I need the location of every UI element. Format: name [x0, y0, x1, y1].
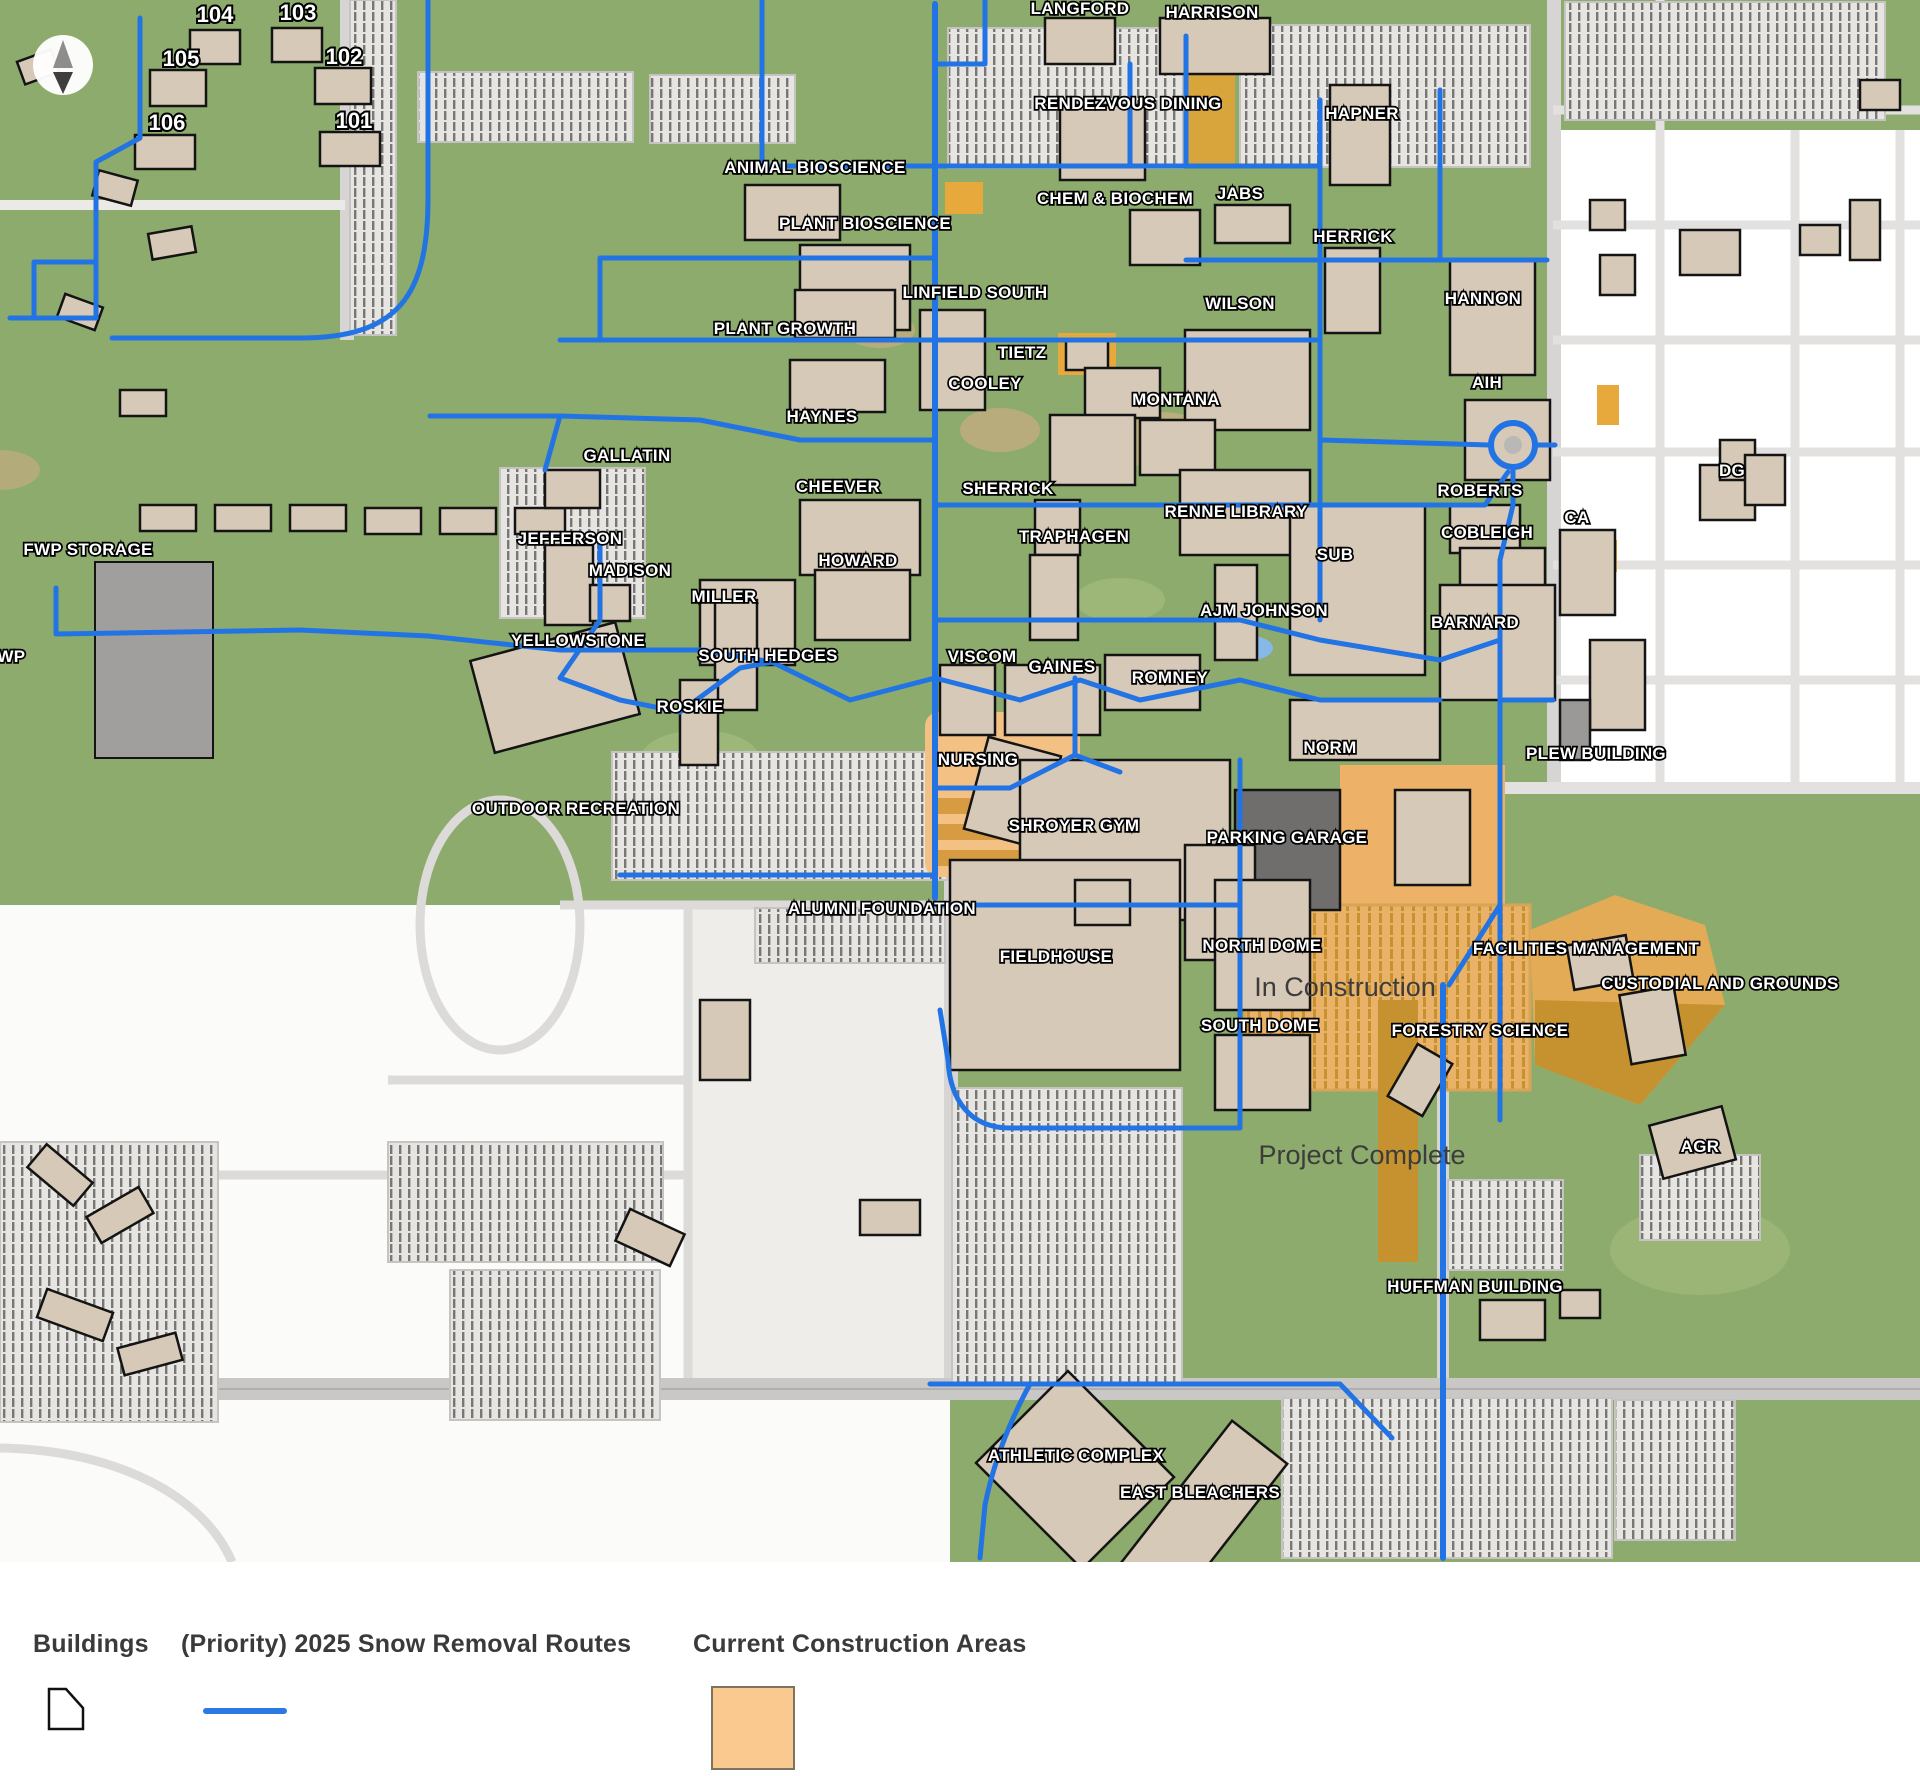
building-label: TRAPHAGEN — [1019, 527, 1129, 546]
building-footprint — [1030, 555, 1078, 640]
building-footprint — [790, 360, 885, 412]
building-label: ATHLETIC COMPLEX — [988, 1446, 1165, 1465]
building-label: COBLEIGH — [1441, 523, 1533, 542]
building-footprint — [290, 505, 346, 531]
building-label: 104 — [197, 2, 234, 27]
map-legend: Buildings (Priority) 2025 Snow Removal R… — [0, 1562, 1920, 1776]
building-footprint — [1395, 790, 1470, 885]
building-label: HOWARD — [818, 551, 897, 570]
building-footprint — [140, 505, 196, 531]
building-footprint — [680, 680, 718, 765]
building-footprint — [1600, 255, 1635, 295]
legend-label-snow-routes: (Priority) 2025 Snow Removal Routes — [181, 1630, 631, 1659]
building-footprint — [320, 132, 380, 166]
building-footprint — [1480, 1300, 1545, 1340]
building-label: FWP STORAGE — [23, 540, 152, 559]
building-label: MILLER — [691, 587, 756, 606]
building-label: NORM — [1303, 738, 1356, 757]
building-footprint — [1560, 1290, 1600, 1318]
building-footprint — [365, 508, 421, 534]
building-label: AJM JOHNSON — [1200, 601, 1328, 620]
building-label: FIELDHOUSE — [1000, 947, 1113, 966]
building-footprint — [1800, 225, 1840, 255]
building-label: SUB — [1317, 545, 1354, 564]
building-label: WILSON — [1205, 294, 1275, 313]
building-label: GALLATIN — [583, 446, 670, 465]
building-label: PLEW BUILDING — [1526, 744, 1666, 763]
building-label: CHEEVER — [796, 477, 880, 496]
building-label: OUTDOOR RECREATION — [472, 799, 680, 818]
legend-label-buildings: Buildings — [33, 1630, 149, 1659]
building-footprint — [215, 505, 271, 531]
compass-icon[interactable] — [33, 35, 93, 95]
building-footprint — [1590, 640, 1645, 730]
building-footprint — [1680, 230, 1740, 275]
parking-lot — [650, 75, 795, 143]
building-footprint — [545, 545, 593, 625]
building-footprint — [1050, 415, 1135, 485]
building-label: SOUTH DOME — [1201, 1016, 1319, 1035]
campus-map[interactable]: 104103105102106101LANGFORDHARRISONRENDEZ… — [0, 0, 1920, 1562]
parking-lot — [418, 72, 633, 142]
building-label: BARNARD — [1431, 613, 1519, 632]
building-footprint — [1860, 80, 1900, 110]
building-label: AIH — [1472, 373, 1502, 392]
building-label: HANNON — [1445, 289, 1521, 308]
building-label: RENDEZVOUS DINING — [1034, 94, 1221, 113]
building-label: CUSTODIAL AND GROUNDS — [1601, 974, 1838, 993]
roundabout — [1504, 436, 1522, 454]
building-label: SHROYER GYM — [1009, 816, 1140, 835]
building-footprint — [590, 585, 630, 621]
building-label: ANIMAL BIOSCIENCE — [724, 158, 905, 177]
building-label: PLANT GROWTH — [714, 319, 856, 338]
building-label: LANGFORD — [1031, 0, 1130, 18]
building-footprint — [940, 665, 995, 735]
building-label: HUFFMAN BUILDING — [1387, 1277, 1563, 1296]
building-label: MADISON — [589, 561, 671, 580]
parking-lot — [450, 1270, 660, 1420]
building-label: SOUTH HEDGES — [698, 646, 838, 665]
building-label: COOLEY — [948, 374, 1022, 393]
building-footprint — [1066, 340, 1108, 370]
building-label: PARKING GARAGE — [1207, 828, 1368, 847]
building-label: JEFFERSON — [518, 529, 623, 548]
building-label: HARRISON — [1165, 3, 1258, 22]
building-footprint — [135, 135, 195, 169]
building-footprint — [1745, 455, 1785, 505]
building-label: DG — [1719, 461, 1745, 480]
building-footprint — [1215, 1035, 1310, 1110]
parking-lot — [1615, 1400, 1735, 1540]
building-label: FACILITIES MANAGEMENT — [1473, 939, 1700, 958]
parking-lot — [0, 1142, 218, 1422]
building-label: SHERRICK — [962, 479, 1054, 498]
building-footprint — [1850, 200, 1880, 260]
building-label: JABS — [1217, 184, 1264, 203]
building-label: 105 — [163, 46, 200, 71]
building-label: 102 — [326, 44, 363, 69]
construction-swatch-icon — [711, 1686, 795, 1770]
building-footprint — [120, 390, 166, 416]
building-label: 103 — [280, 0, 317, 25]
building-footprint — [1560, 530, 1615, 615]
status-label: Project Complete — [1258, 1140, 1465, 1170]
parking-lot — [952, 1088, 1182, 1383]
building-label: PLANT BIOSCIENCE — [779, 214, 951, 233]
building-label: LINFIELD SOUTH — [903, 283, 1048, 302]
building-label: HAYNES — [786, 407, 857, 426]
building-label: NORTH DOME — [1202, 936, 1321, 955]
building-footprint — [1590, 200, 1625, 230]
building-footprint — [1185, 330, 1310, 430]
building-footprint — [1619, 986, 1685, 1064]
building-label: YELLOWSTONE — [511, 631, 645, 650]
building-footprint — [1290, 505, 1425, 675]
building-label: AGR — [1681, 1137, 1720, 1156]
building-footprint — [1450, 260, 1535, 375]
building-label: GAINES — [1029, 657, 1096, 676]
building-footprint — [440, 508, 496, 534]
building-footprint — [860, 1200, 920, 1235]
building-footprint — [920, 310, 985, 410]
parking-lot — [1282, 1398, 1612, 1558]
building-footprint — [1160, 18, 1270, 74]
building-label: ROMNEY — [1132, 668, 1209, 687]
building-footprint — [1330, 85, 1390, 185]
building-label: 106 — [149, 110, 186, 135]
building-footprint — [1130, 210, 1200, 265]
building-label: CHEM & BIOCHEM — [1037, 189, 1193, 208]
building-footprint — [1215, 205, 1290, 243]
building-label: EAST BLEACHERS — [1120, 1483, 1280, 1502]
building-footprint — [150, 70, 206, 106]
fwp-storage-yard — [95, 562, 213, 758]
building-footprint — [700, 1000, 750, 1080]
building-swatch-icon — [46, 1686, 86, 1732]
building-label: RENNE LIBRARY — [1164, 502, 1307, 521]
building-footprint — [272, 28, 322, 62]
building-label: HAPNER — [1325, 104, 1399, 123]
building-label: FORESTRY SCIENCE — [1392, 1021, 1569, 1040]
snow-route-swatch-icon — [203, 1708, 287, 1714]
building-label: HERRICK — [1313, 227, 1393, 246]
building-label: ALUMNI FOUNDATION — [788, 899, 976, 918]
building-footprint — [315, 68, 371, 104]
building-label: CA — [1564, 508, 1589, 527]
status-label: In Construction — [1254, 972, 1436, 1002]
building-label: MONTANA — [1132, 390, 1220, 409]
building-label: ROSKIE — [657, 697, 724, 716]
building-footprint — [1045, 18, 1115, 64]
building-label: TIETZ — [998, 343, 1047, 362]
building-footprint — [1140, 420, 1215, 475]
building-label: NURSING — [938, 750, 1019, 769]
parking-lot — [1565, 2, 1885, 120]
building-footprint — [815, 570, 910, 640]
building-label: FWP — [0, 647, 25, 666]
building-label: VISCOM — [948, 647, 1017, 666]
building-footprint — [545, 470, 600, 508]
building-label: 101 — [336, 108, 373, 133]
building-label: ROBERTS — [1437, 481, 1522, 500]
parking-lot — [1448, 1180, 1563, 1270]
legend-label-construction: Current Construction Areas — [693, 1630, 1026, 1659]
